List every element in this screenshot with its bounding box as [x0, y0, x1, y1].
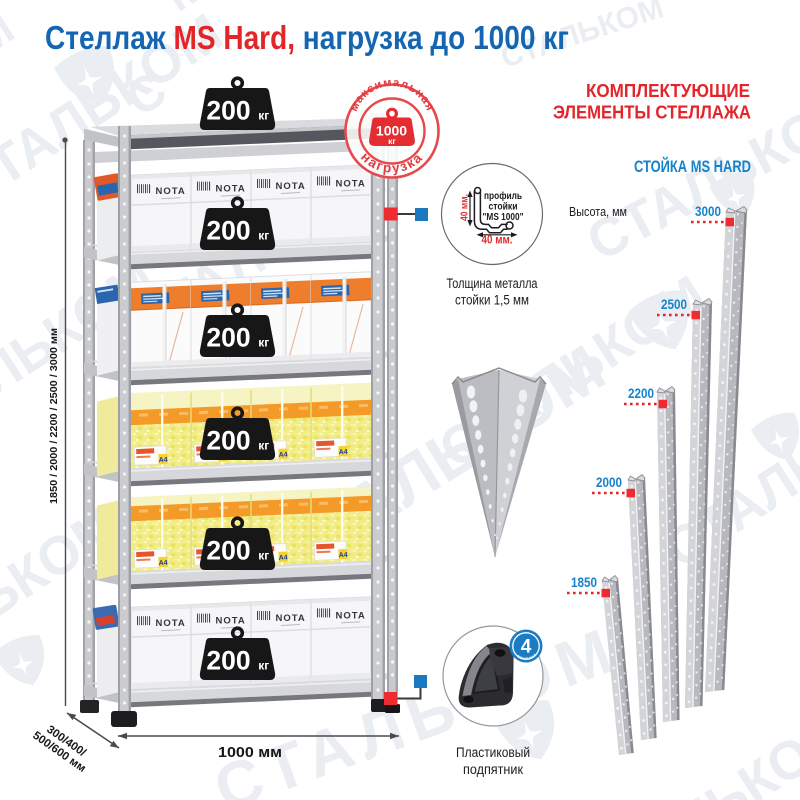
svg-text:кг: кг — [258, 109, 269, 123]
svg-text:NOTA: NOTA — [335, 178, 365, 189]
svg-text:200: 200 — [206, 323, 250, 353]
svg-text:NOTA: NOTA — [275, 613, 305, 624]
svg-text:40 мм.: 40 мм. — [482, 235, 513, 247]
svg-text:кг: кг — [258, 229, 269, 243]
svg-text:1850 / 2000 / 2200 / 2500 / 30: 1850 / 2000 / 2200 / 2500 / 3000 мм — [49, 328, 60, 504]
svg-text:A4: A4 — [158, 457, 167, 464]
svg-text:200: 200 — [206, 426, 250, 456]
svg-text:1850: 1850 — [571, 575, 597, 590]
svg-text:200: 200 — [206, 646, 250, 676]
svg-text:кг: кг — [258, 336, 269, 350]
svg-text:1000 мм: 1000 мм — [218, 744, 282, 761]
svg-text:2200: 2200 — [628, 386, 654, 401]
svg-text:200: 200 — [206, 536, 250, 566]
svg-text:Толщина металла: Толщина металла — [447, 276, 538, 291]
svg-text:NOTA: NOTA — [215, 184, 245, 195]
svg-text:2500: 2500 — [661, 297, 687, 312]
svg-text:кг: кг — [258, 549, 269, 563]
svg-text:2000: 2000 — [596, 475, 622, 490]
svg-text:стойки 1,5 мм: стойки 1,5 мм — [455, 293, 529, 308]
svg-text:A4: A4 — [158, 560, 167, 567]
svg-text:NOTA: NOTA — [155, 186, 185, 197]
svg-text:КОМПЛЕКТУЮЩИЕ: КОМПЛЕКТУЮЩИЕ — [586, 80, 750, 101]
svg-text:кг: кг — [258, 439, 269, 453]
svg-text:СТОЙКА MS HARD: СТОЙКА MS HARD — [634, 157, 751, 176]
svg-text:3000: 3000 — [695, 204, 721, 219]
svg-text:NOTA: NOTA — [335, 610, 365, 621]
svg-text:40 мм.: 40 мм. — [460, 194, 471, 221]
svg-text:A4: A4 — [338, 552, 347, 559]
svg-text:"MS 1000": "MS 1000" — [483, 211, 524, 223]
svg-text:200: 200 — [206, 216, 250, 246]
svg-text:Высота, мм: Высота, мм — [569, 204, 627, 219]
svg-text:кг: кг — [388, 136, 396, 146]
svg-text:подпятник: подпятник — [463, 762, 523, 777]
svg-text:NOTA: NOTA — [155, 618, 185, 629]
svg-text:NOTA: NOTA — [275, 181, 305, 192]
svg-text:A4: A4 — [278, 451, 287, 458]
svg-text:СТАЛЬКОМ: СТАЛЬКОМ — [574, 699, 800, 800]
svg-text:A4: A4 — [278, 554, 287, 561]
svg-text:М: М — [0, 1, 24, 67]
svg-text:кг: кг — [258, 659, 269, 673]
svg-text:A4: A4 — [338, 449, 347, 456]
svg-text:NOTA: NOTA — [215, 616, 245, 627]
svg-text:Пластиковый: Пластиковый — [456, 745, 530, 760]
svg-text:Стеллаж MS Hard, нагрузка до 1: Стеллаж MS Hard, нагрузка до 1000 кг — [45, 19, 569, 56]
svg-text:200: 200 — [206, 96, 250, 126]
svg-text:ЭЛЕМЕНТЫ СТЕЛЛАЖА: ЭЛЕМЕНТЫ СТЕЛЛАЖА — [553, 102, 751, 123]
svg-text:4: 4 — [521, 637, 532, 658]
